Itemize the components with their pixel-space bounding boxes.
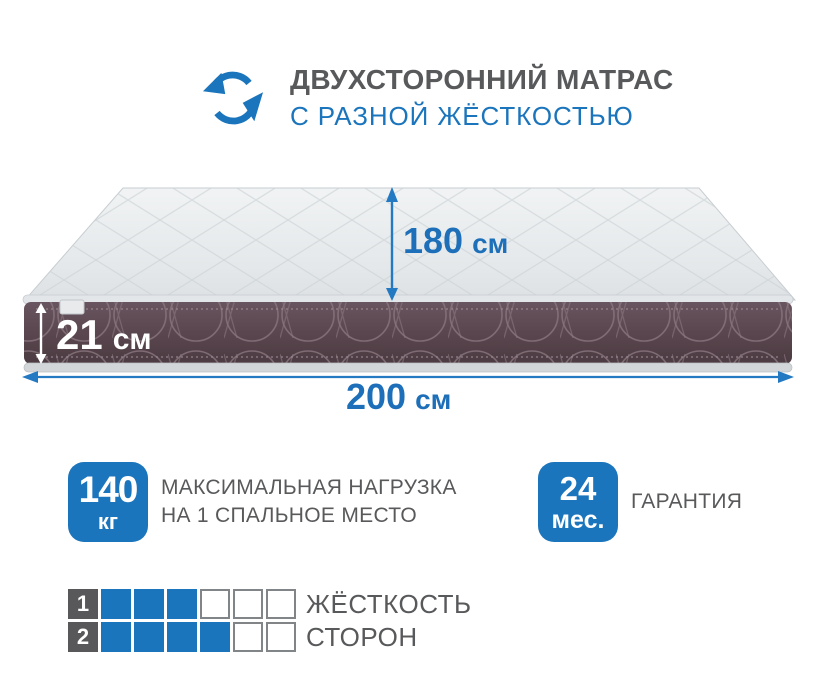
firmness-square-empty bbox=[266, 622, 296, 652]
mattress-svg: 180см 21см 200см bbox=[0, 160, 816, 440]
header-text: ДВУХСТОРОННИЙ МАТРАС С РАЗНОЙ ЖЁСТКОСТЬЮ bbox=[290, 64, 674, 132]
width-unit: см bbox=[415, 384, 451, 415]
warranty-value: 24 bbox=[560, 472, 597, 505]
height-value: 21 bbox=[56, 311, 103, 358]
max-load-value: 140 bbox=[79, 471, 138, 508]
rotate-arrows-icon bbox=[202, 66, 264, 130]
warranty-label: ГАРАНТИЯ bbox=[631, 488, 742, 516]
max-load-unit: кг bbox=[98, 511, 118, 533]
max-load-label: МАКСИМАЛЬНАЯ НАГРУЗКА НА 1 СПАЛЬНОЕ МЕСТ… bbox=[161, 474, 457, 530]
firmness-label-line1: ЖЁСТКОСТЬ bbox=[306, 588, 472, 621]
max-load-label-line1: МАКСИМАЛЬНАЯ НАГРУЗКА bbox=[161, 474, 457, 502]
page-title: ДВУХСТОРОННИЙ МАТРАС bbox=[290, 64, 674, 96]
firmness-square-filled bbox=[101, 589, 131, 619]
firmness-square-filled bbox=[200, 622, 230, 652]
mattress-infographic: ДВУХСТОРОННИЙ МАТРАС С РАЗНОЙ ЖЁСТКОСТЬЮ bbox=[0, 0, 816, 700]
warranty-spec: 24 мес. ГАРАНТИЯ bbox=[538, 462, 742, 542]
firmness-row-side1: 1 bbox=[68, 589, 296, 619]
firmness-squares-side2 bbox=[101, 622, 296, 652]
firmness-label-line2: СТОРОН bbox=[306, 621, 472, 654]
firmness-square-filled bbox=[134, 622, 164, 652]
firmness-labels: ЖЁСТКОСТЬ СТОРОН bbox=[306, 588, 472, 654]
firmness-squares-side1 bbox=[101, 589, 296, 619]
width-value: 200 bbox=[346, 376, 406, 417]
width-dimension-label: 200см bbox=[346, 376, 451, 417]
warranty-unit: мес. bbox=[552, 508, 605, 533]
height-unit: см bbox=[113, 323, 152, 356]
firmness-scale: 1 2 bbox=[68, 589, 296, 655]
firmness-square-filled bbox=[101, 622, 131, 652]
side-number-badge: 2 bbox=[68, 622, 98, 652]
width-dimension-arrow bbox=[22, 371, 794, 383]
mattress-bottom-piping bbox=[24, 363, 792, 372]
firmness-square-empty bbox=[233, 622, 263, 652]
depth-unit: см bbox=[472, 228, 508, 259]
page-subtitle: С РАЗНОЙ ЖЁСТКОСТЬЮ bbox=[290, 101, 674, 132]
header: ДВУХСТОРОННИЙ МАТРАС С РАЗНОЙ ЖЁСТКОСТЬЮ bbox=[202, 64, 674, 132]
firmness-row-side2: 2 bbox=[68, 622, 296, 652]
max-load-spec: 140 кг МАКСИМАЛЬНАЯ НАГРУЗКА НА 1 СПАЛЬН… bbox=[68, 462, 457, 542]
mattress-illustration: 180см 21см 200см bbox=[0, 160, 816, 440]
depth-value: 180 bbox=[403, 220, 463, 261]
firmness-square-filled bbox=[167, 622, 197, 652]
side-number-badge: 1 bbox=[68, 589, 98, 619]
firmness-square-empty bbox=[200, 589, 230, 619]
firmness-square-empty bbox=[266, 589, 296, 619]
firmness-square-filled bbox=[134, 589, 164, 619]
max-load-label-line2: НА 1 СПАЛЬНОЕ МЕСТО bbox=[161, 502, 457, 530]
warranty-label-line1: ГАРАНТИЯ bbox=[631, 488, 742, 516]
firmness-square-filled bbox=[167, 589, 197, 619]
firmness-square-empty bbox=[233, 589, 263, 619]
max-load-badge: 140 кг bbox=[68, 462, 148, 542]
warranty-badge: 24 мес. bbox=[538, 462, 618, 542]
